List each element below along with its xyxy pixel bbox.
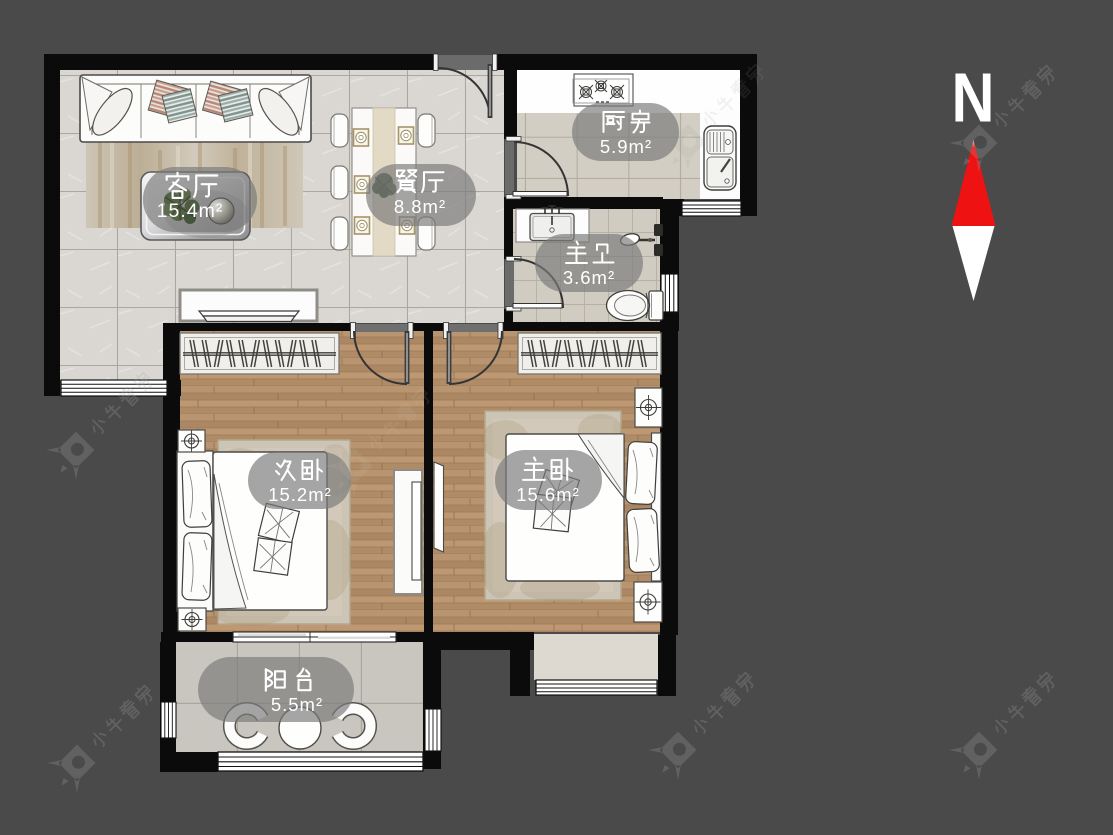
svg-text:15.4m²: 15.4m² <box>157 200 224 222</box>
svg-text:5.5m²: 5.5m² <box>271 694 323 715</box>
svg-text:5.9m²: 5.9m² <box>600 136 652 157</box>
svg-text:15.6m²: 15.6m² <box>516 484 580 505</box>
svg-text:3.6m²: 3.6m² <box>563 267 615 288</box>
svg-text:8.8m²: 8.8m² <box>394 196 446 217</box>
svg-text:15.2m²: 15.2m² <box>268 484 332 505</box>
svg-text:N: N <box>952 59 995 137</box>
